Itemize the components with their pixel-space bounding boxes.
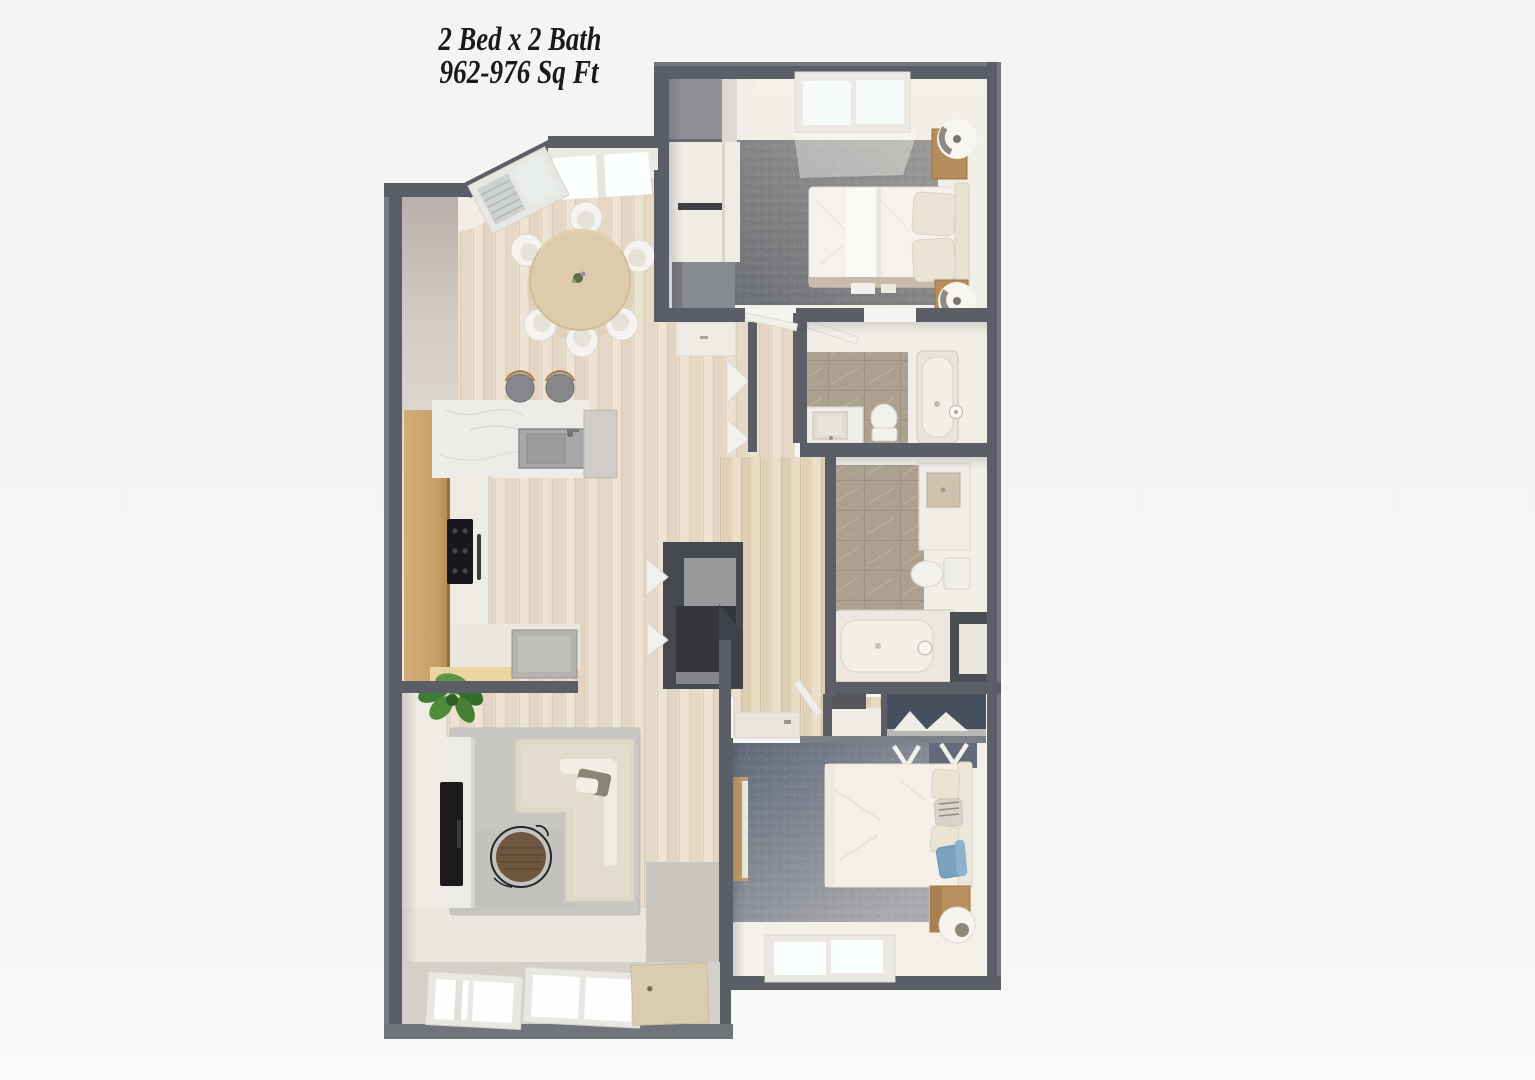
svg-text:2 Bed x 2 Bath: 2 Bed x 2 Bath [438,21,602,58]
svg-text:962-976 Sq Ft: 962-976 Sq Ft [440,54,600,91]
